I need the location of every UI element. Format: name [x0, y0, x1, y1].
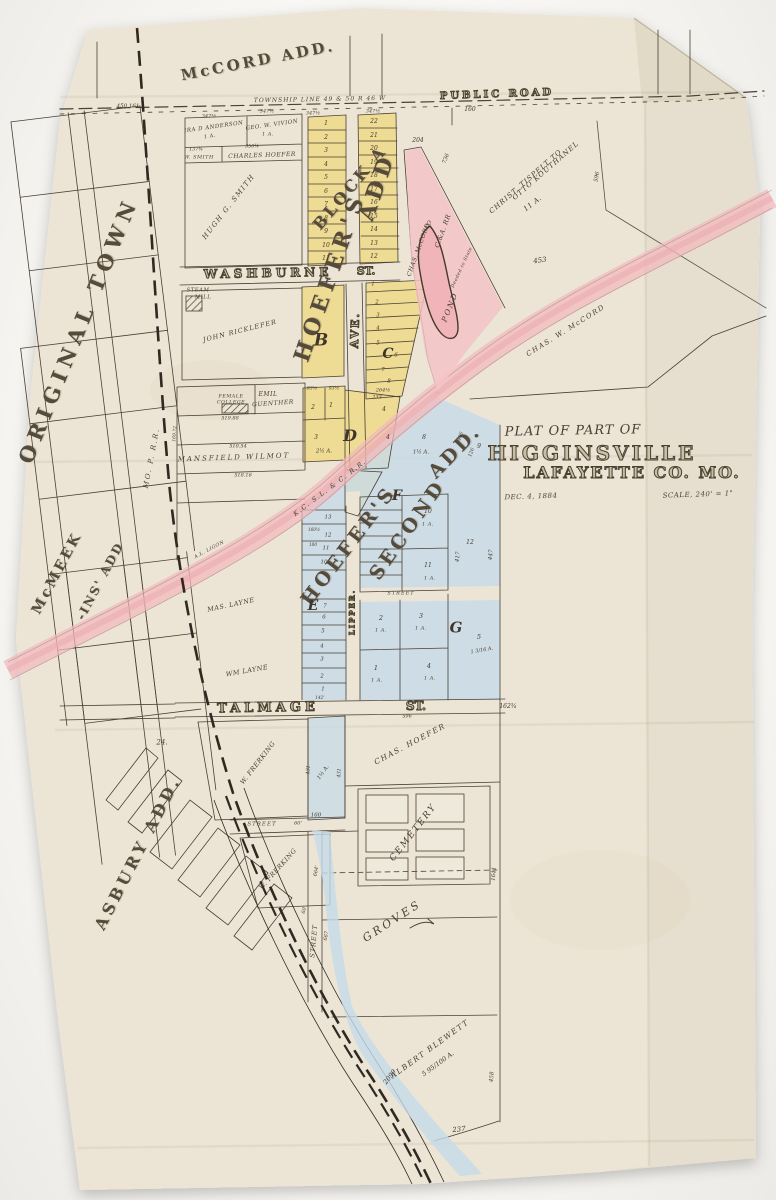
map-artwork	[0, 0, 776, 1200]
photo-backdrop: McCORD ADD.TOWNSHIP LINE 49 & 50 R 46 WP…	[0, 0, 776, 1200]
